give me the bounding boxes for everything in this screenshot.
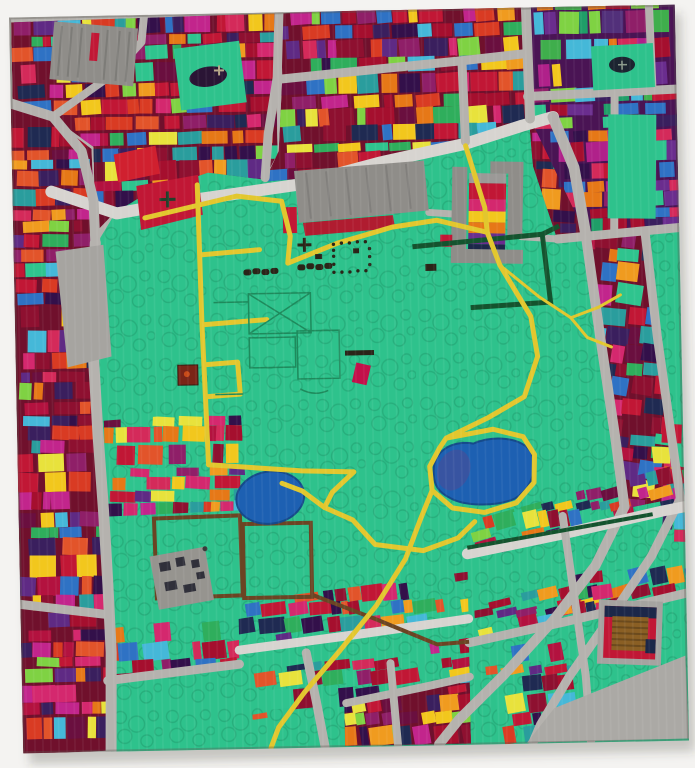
quilt-photograph (0, 0, 695, 768)
quilt (0, 0, 695, 755)
fabric-ribbing-overlay (9, 5, 689, 754)
quilt-map-svg (0, 0, 695, 768)
